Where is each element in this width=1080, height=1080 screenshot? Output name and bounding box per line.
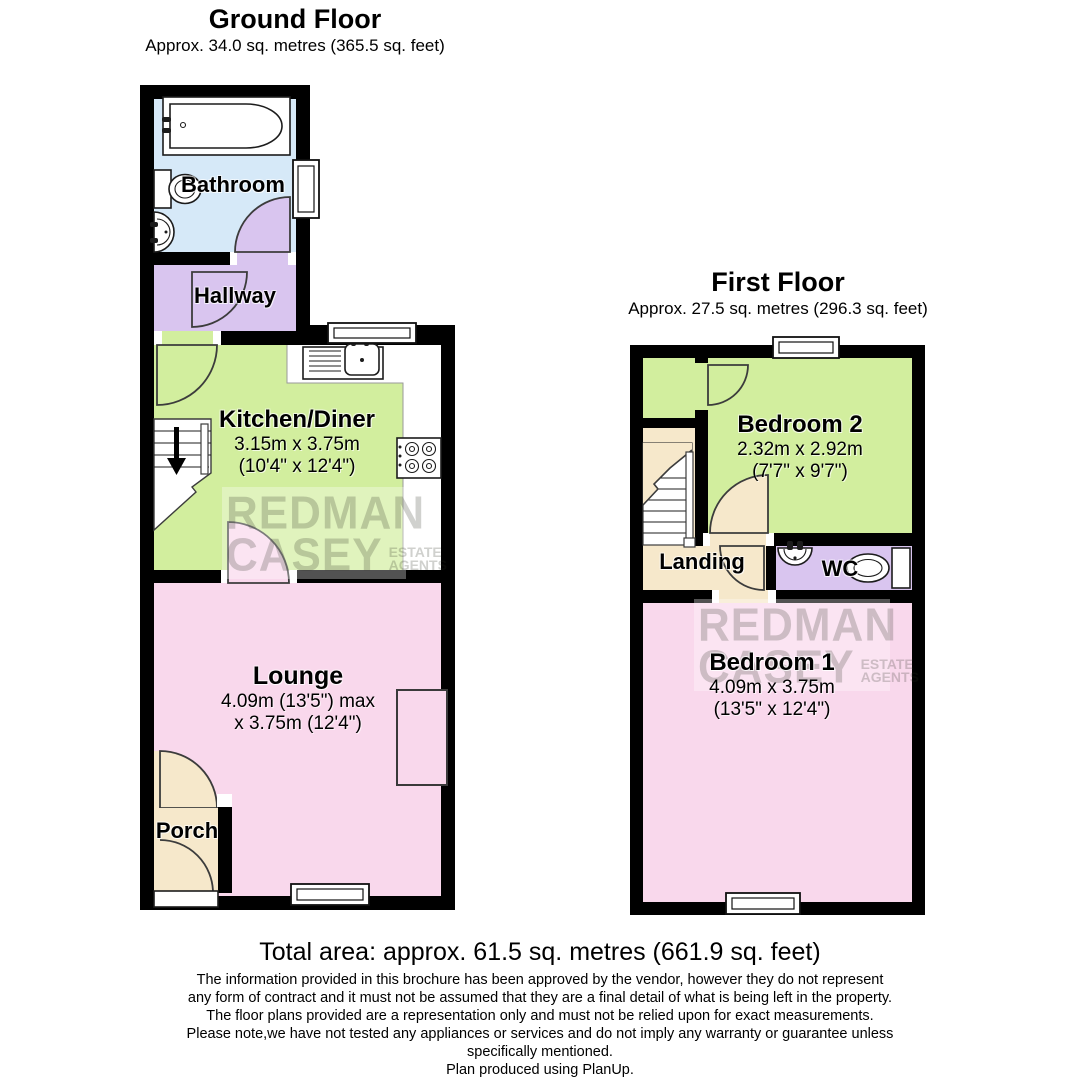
watermark-sub: ESTATEAGENTS <box>389 546 447 577</box>
ff-wall-wc <box>766 546 776 590</box>
door-jamb <box>213 331 221 345</box>
bathroom-label: Bathroom <box>163 172 303 198</box>
disclaimer-text: The information provided in this brochur… <box>0 971 1080 1079</box>
lounge-label: Lounge <box>198 662 398 691</box>
lounge-dims-line2: x 3.75m (12'4") <box>188 713 408 735</box>
first-floor-area: Approx. 27.5 sq. metres (296.3 sq. feet) <box>628 299 928 319</box>
stairs-icon <box>643 443 695 547</box>
window-icon <box>773 337 839 358</box>
kitchen-dims-metric: 3.15m x 3.75m <box>197 434 397 456</box>
watermark-line2: CASEY <box>226 534 383 578</box>
ground-floor-area: Approx. 34.0 sq. metres (365.5 sq. feet) <box>145 36 445 56</box>
door-jamb <box>154 331 162 345</box>
floorplan-canvas <box>0 0 1080 1080</box>
bedroom2-dims-imperial: (7'7" x 9'7") <box>700 461 900 483</box>
lounge-dims-line1: 4.09m (13'5") max <box>188 691 408 713</box>
bedroom1-label: Bedroom 1 <box>672 649 872 677</box>
hallway-label: Hallway <box>165 283 305 309</box>
door-jamb <box>217 794 232 807</box>
door-jamb <box>703 533 710 546</box>
kitchen-dims-imperial: (10'4" x 12'4") <box>197 456 397 478</box>
window-icon <box>328 323 416 343</box>
disclaimer-line: The information provided in this brochur… <box>0 971 1080 989</box>
bedroom2-label: Bedroom 2 <box>700 411 900 439</box>
bedroom2-alcove <box>643 358 695 418</box>
disclaimer-line: Please note,we have not tested any appli… <box>0 1025 1080 1043</box>
ground-floor-title: Ground Floor <box>145 4 445 35</box>
porch-label: Porch <box>146 818 228 844</box>
total-area-text: Total area: approx. 61.5 sq. metres (661… <box>0 938 1080 967</box>
first-floor-title: First Floor <box>628 267 928 298</box>
bedroom1-dims-metric: 4.09m x 3.75m <box>672 677 872 699</box>
ff-wall-alcove <box>630 418 708 428</box>
bedroom1-dims-imperial: (13'5" x 12'4") <box>672 699 872 721</box>
porch-threshold <box>154 891 218 907</box>
disclaimer-line: Plan produced using PlanUp. <box>0 1061 1080 1079</box>
wc-label: WC <box>815 556 865 582</box>
hob-icon <box>397 438 441 478</box>
disclaimer-line: any form of contract and it must not be … <box>0 989 1080 1007</box>
kitchen-label: Kitchen/Diner <box>197 406 397 434</box>
disclaimer-line: The floor plans provided are a represent… <box>0 1007 1080 1025</box>
door-jamb <box>288 252 296 265</box>
watermark: REDMAN CASEY ESTATEAGENTS <box>222 487 406 579</box>
bathroom-door-gap <box>237 252 290 265</box>
kitchen-door-gap <box>162 331 213 345</box>
landing-label: Landing <box>647 549 757 575</box>
bedroom2-door-gap <box>695 363 708 410</box>
window-icon <box>291 884 369 905</box>
door-jamb <box>766 533 774 546</box>
bedroom2-dims-metric: 2.32m x 2.92m <box>700 439 900 461</box>
bathtub-icon <box>162 97 290 155</box>
bedroom2-lower-door-gap <box>710 533 766 546</box>
window-icon <box>726 893 800 914</box>
disclaimer-line: specifically mentioned. <box>0 1043 1080 1061</box>
door-jamb <box>230 252 237 265</box>
